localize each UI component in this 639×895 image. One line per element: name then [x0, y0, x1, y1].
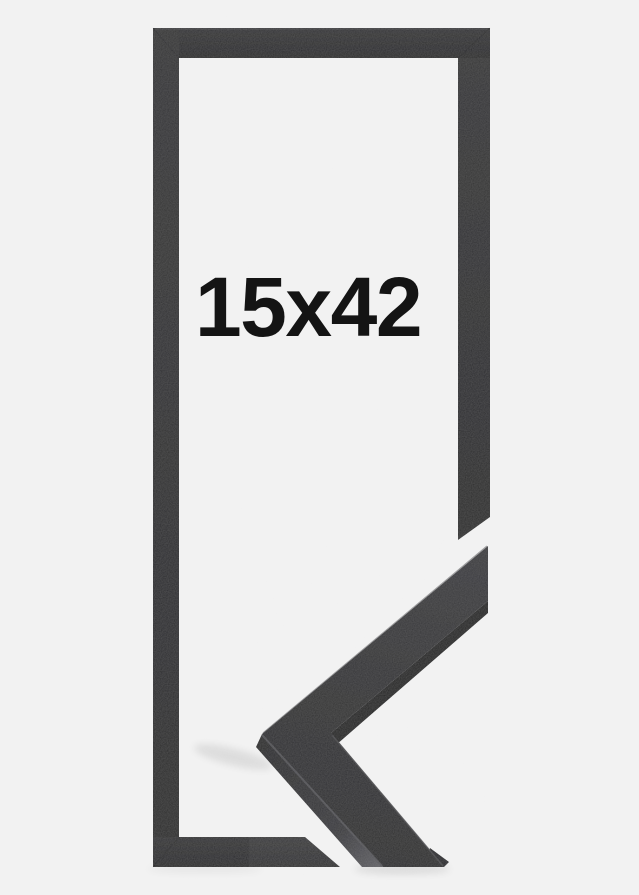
- frame-left-bar: [153, 28, 179, 867]
- corner-sample: [256, 546, 488, 867]
- size-label: 15x42: [0, 265, 616, 349]
- black-frame-graphic: [0, 0, 639, 895]
- frame-top-bar: [153, 28, 490, 58]
- product-image: 15x42: [0, 0, 639, 895]
- frame-bottom-bar: [153, 837, 340, 867]
